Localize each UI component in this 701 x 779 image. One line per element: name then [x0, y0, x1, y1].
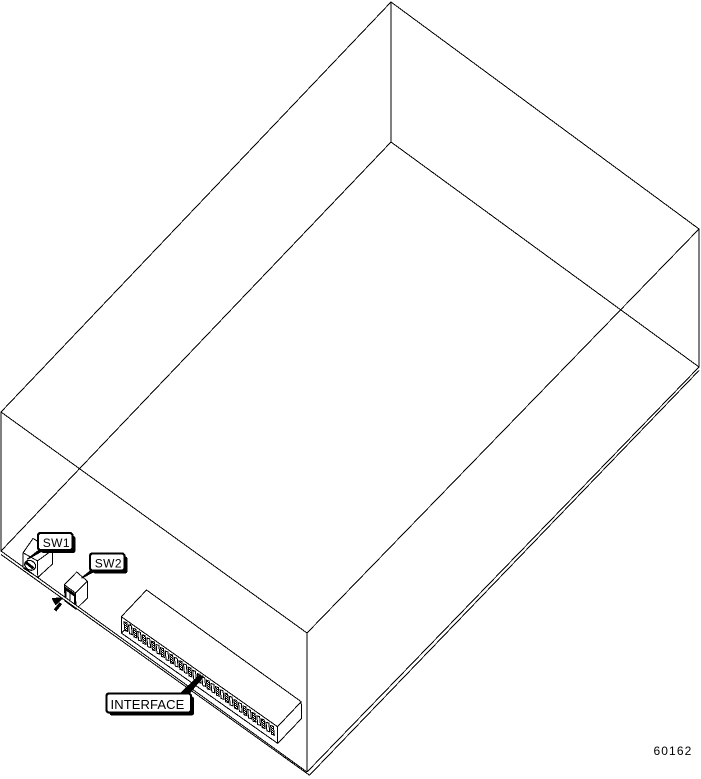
- svg-text:60162: 60162: [654, 744, 693, 758]
- svg-text:INTERFACE: INTERFACE: [111, 697, 185, 712]
- svg-text:SW1: SW1: [43, 536, 70, 550]
- svg-text:SW2: SW2: [95, 557, 122, 571]
